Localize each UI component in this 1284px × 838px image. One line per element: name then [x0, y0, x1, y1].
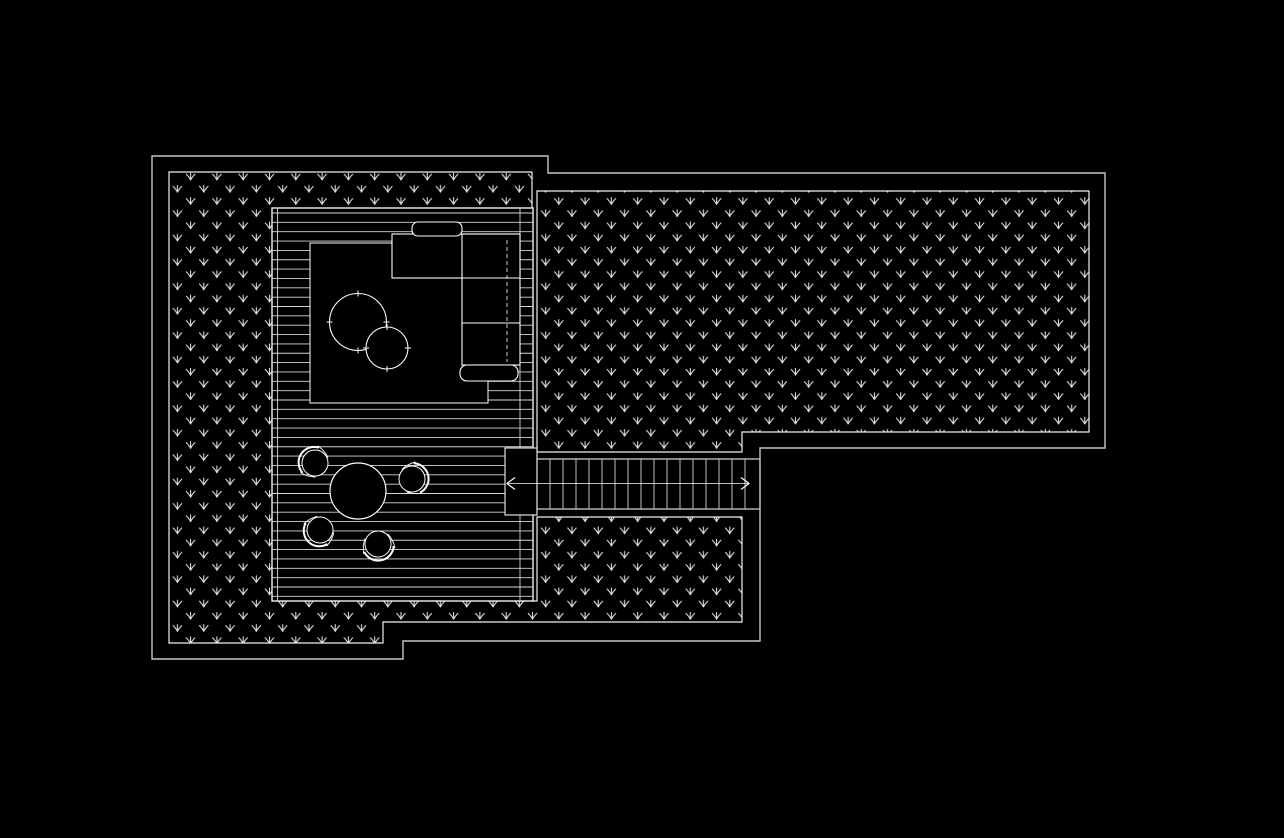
dining-table — [330, 463, 386, 519]
garden-area-right — [537, 191, 1089, 452]
stair-run — [537, 459, 760, 509]
sofa-arm-cushion — [460, 365, 518, 381]
coffee-table-small-top — [366, 327, 408, 369]
floor-plan — [0, 0, 1284, 838]
floor-plan-canvas — [0, 0, 1284, 838]
sofa-section — [462, 234, 520, 365]
sofa-back-cushion — [412, 222, 462, 236]
